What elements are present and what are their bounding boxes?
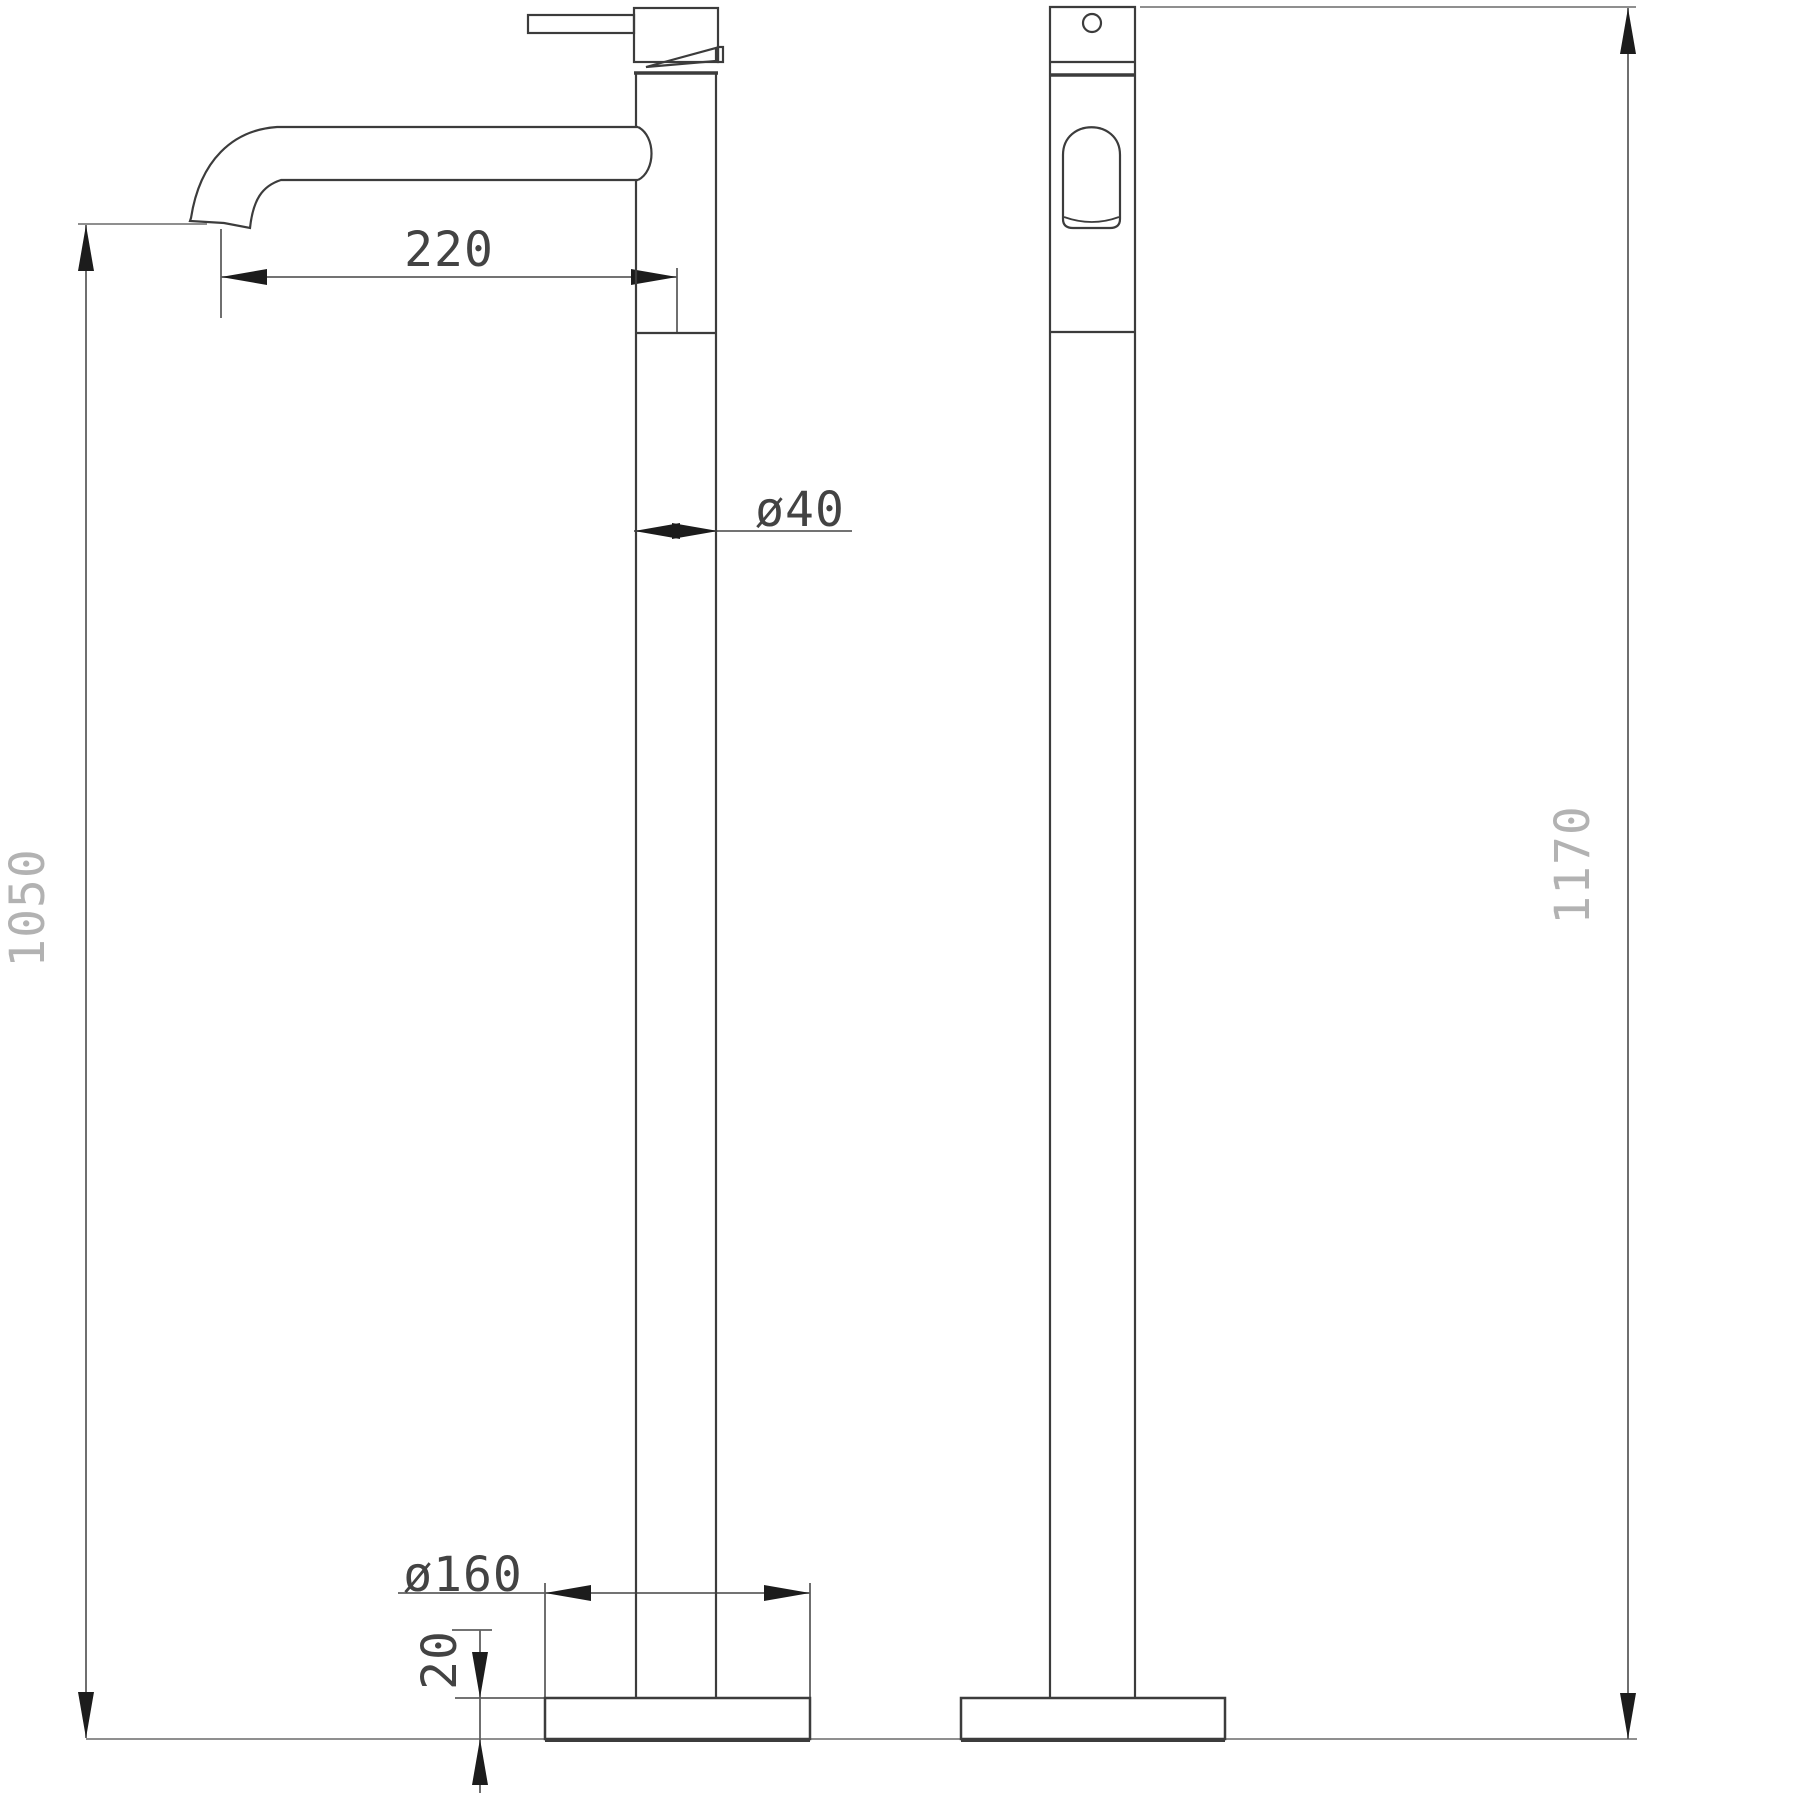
drawing-canvas: 220 ø40 ø160 20 1050 1170 [0, 0, 1800, 1800]
arrow-right-base-diameter [764, 1585, 810, 1601]
arrow-left-base-diameter [545, 1585, 591, 1601]
label-spout-reach: 220 [404, 222, 494, 278]
dimension-lines [86, 8, 1628, 1793]
front-view [190, 8, 810, 1739]
arrow-down-total-height [1620, 1693, 1636, 1739]
cartridge-body [634, 8, 718, 62]
screw-hole [1083, 14, 1101, 32]
column-side [1050, 7, 1135, 1698]
dimension-labels-gray: 1050 1170 [0, 805, 1601, 968]
technical-drawing: 220 ø40 ø160 20 1050 1170 [0, 0, 1800, 1800]
column-front [636, 73, 716, 1698]
dimension-labels-dark: 220 ø40 ø160 20 [403, 222, 845, 1690]
lever-tail-wedge [646, 48, 716, 67]
lever-tail-nub [718, 47, 723, 62]
label-base-diameter: ø160 [403, 1547, 523, 1603]
handle-rear-profile [1063, 127, 1120, 228]
extension-lines-gray [78, 7, 1637, 1739]
lever-handle [528, 15, 634, 33]
spout-end-cap [638, 127, 652, 180]
arrow-up-spout-height [78, 225, 94, 271]
arrow-right-spout-reach [631, 269, 677, 285]
arrow-down-base-thickness [472, 1652, 488, 1698]
handle-rear-bottom-curve [1064, 217, 1119, 222]
base-front [545, 1698, 810, 1739]
arrow-left-spout-reach [221, 269, 267, 285]
base-side [961, 1698, 1225, 1739]
label-base-thickness: 20 [412, 1630, 468, 1690]
label-total-height: 1170 [1545, 805, 1601, 925]
spout [190, 127, 638, 228]
arrow-down-spout-height [78, 1692, 94, 1738]
label-spout-height: 1050 [0, 848, 56, 968]
label-column-diameter: ø40 [755, 482, 845, 538]
dimension-arrowheads [78, 8, 1636, 1785]
arrow-up-total-height [1620, 8, 1636, 54]
arrow-up-base-thickness [472, 1739, 488, 1785]
side-view [545, 7, 1225, 1740]
arrow-right-column-diameter [672, 523, 718, 539]
